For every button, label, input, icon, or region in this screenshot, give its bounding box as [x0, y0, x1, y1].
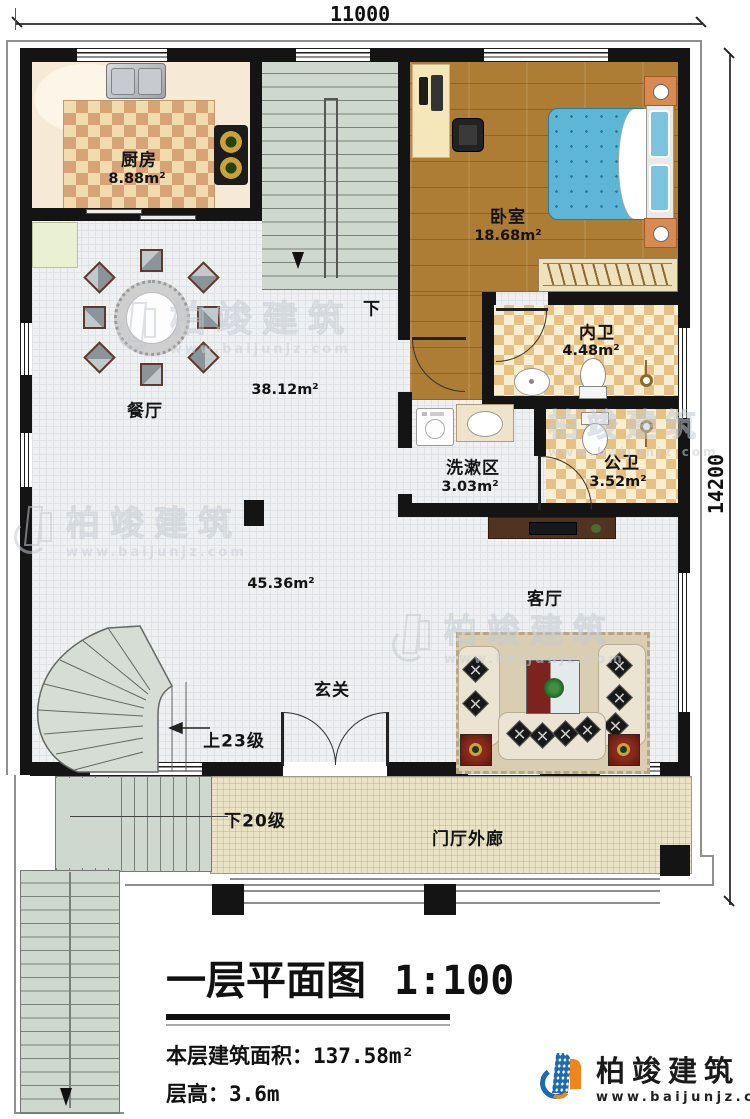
pillow: [649, 110, 670, 158]
dining-chair: [140, 249, 163, 272]
washer-knob: [422, 412, 427, 416]
room-area-public-bath: 3.52m²: [589, 474, 646, 490]
room-area-dining: 38.12m²: [251, 382, 318, 398]
room-area-kitchen: 8.88m²: [108, 171, 165, 187]
washing-machine: [416, 408, 454, 446]
dim-line-right: [729, 55, 731, 905]
dim-ext: [15, 8, 16, 30]
dim-tick: [11, 16, 22, 27]
title-underline-thin: [166, 1024, 450, 1026]
plant-pot: [469, 743, 482, 756]
window: [678, 573, 690, 712]
window: [484, 48, 608, 62]
tv: [529, 522, 577, 535]
room-label-porch: 门厅外廊: [432, 825, 504, 850]
shower-stem: [645, 360, 647, 374]
floor-area-label: 本层建筑面积：: [166, 1044, 313, 1068]
boundary: [6, 40, 8, 775]
wall-bedroom-south: [548, 292, 690, 305]
dim-right-value: 14200: [704, 454, 728, 514]
bed-quilt: [618, 109, 646, 219]
shower-head: [640, 420, 653, 433]
dining-chair: [140, 363, 163, 386]
room-area-wash: 3.03m²: [441, 479, 498, 495]
desk-chair-seat: [459, 125, 477, 145]
floor-height-value: 3.6m: [229, 1082, 280, 1106]
shower-head: [640, 374, 653, 387]
nightstand: [644, 76, 677, 106]
room-area-living: 45.36m²: [247, 576, 314, 592]
title-block: 一层平面图 1:100 本层建筑面积：137.58m² 层高：3.6m: [166, 948, 514, 1108]
floor-plan-sheet: 11000 14200: [0, 0, 750, 1119]
side-cabinet: [32, 222, 78, 268]
boundary: [6, 40, 700, 42]
burner: [220, 157, 242, 179]
washer-knob: [430, 412, 444, 416]
desk: [412, 64, 450, 158]
stair-label-down: 下: [363, 295, 381, 320]
toilet-tank: [579, 386, 607, 399]
room-area-ensuite: 4.48m²: [562, 343, 619, 359]
desk-item: [431, 75, 443, 111]
dim-tick: [695, 16, 706, 27]
coffee-table: [526, 660, 580, 714]
stair-down-arrow: [60, 1088, 72, 1106]
boundary: [712, 855, 714, 885]
room-label-living: 客厅: [527, 585, 563, 610]
porch-column: [424, 884, 456, 915]
room-label-dining: 餐厅: [127, 397, 163, 422]
sheet-title: 一层平面图: [166, 958, 366, 1004]
kitchen-sink: [106, 63, 166, 99]
wash-sink: [467, 411, 503, 437]
brand-name: 柏竣建筑: [596, 1048, 750, 1090]
porch-step: [230, 878, 660, 880]
room-label-foyer: 玄关: [314, 676, 350, 701]
washer-drum: [425, 419, 445, 439]
wall-wash-east: [534, 409, 546, 456]
room-label-public-bath: 公卫: [604, 449, 640, 474]
window: [77, 48, 167, 62]
desk-chair: [452, 118, 484, 152]
stair-rail: [324, 98, 338, 278]
window: [296, 48, 370, 62]
boundary: [14, 775, 16, 1113]
leader-line: [70, 816, 228, 817]
lamp: [653, 84, 669, 100]
drain: [529, 379, 534, 384]
lamp: [653, 226, 669, 242]
curved-stair: [30, 620, 210, 780]
plant-pot: [617, 743, 630, 756]
window: [678, 328, 690, 418]
porch-column: [660, 845, 690, 876]
column: [244, 500, 264, 526]
floor-area-value: 137.58m²: [313, 1044, 414, 1068]
wall-hall-stub: [398, 392, 412, 448]
kitchen-sliding-door: [140, 215, 196, 220]
dim-top-value: 11000: [330, 2, 390, 26]
pillow: [649, 164, 670, 212]
room-label-kitchen: 厨房: [121, 146, 157, 171]
end-table: [460, 734, 492, 766]
kitchen-sliding-door: [86, 209, 142, 214]
room-label-wash: 洗漱区: [446, 454, 500, 479]
sheet-scale: 1:100: [394, 958, 514, 1004]
room-label-bedroom: 卧室: [490, 203, 526, 228]
desk-item: [419, 77, 428, 105]
window: [20, 433, 32, 487]
wall-corridor-east: [482, 292, 494, 404]
ensuite-sink: [514, 368, 550, 396]
outdoor-stair-landing: [56, 778, 116, 868]
sink-basin: [111, 68, 135, 95]
shower-stem: [645, 433, 647, 447]
title-underline: [166, 1014, 450, 1020]
wall-stair-east: [398, 48, 410, 340]
brand-logo-icon: [540, 1051, 588, 1103]
dining-chair: [83, 306, 106, 329]
dining-table-top: [126, 292, 178, 344]
decor: [591, 524, 601, 533]
brand-website: www.baijunjz.com: [596, 1090, 750, 1105]
stair-label-up23: 上23级: [203, 727, 265, 752]
window: [20, 323, 32, 375]
wall-kitchen-east: [250, 48, 262, 221]
nightstand: [644, 218, 677, 248]
wardrobe: [538, 258, 678, 292]
burner: [220, 131, 242, 153]
stair-label-down20: 下20级: [224, 807, 286, 832]
dining-chair: [197, 306, 220, 329]
wardrobe-hangers: [543, 263, 672, 286]
sink-basin: [138, 68, 162, 95]
wash-counter: [456, 404, 514, 442]
table-plant: [544, 678, 564, 698]
boundary: [700, 40, 702, 855]
stair-down-arrow: [292, 252, 304, 269]
brand-logo: 柏竣建筑 www.baijunjz.com: [540, 1048, 750, 1105]
sideboard: [488, 517, 616, 539]
floor-height-label: 层高：: [166, 1082, 229, 1106]
stair-stringer: [69, 872, 71, 1108]
room-label-ensuite: 内卫: [579, 319, 615, 344]
porch-column: [212, 884, 244, 915]
stove: [214, 125, 248, 185]
room-area-bedroom: 18.68m²: [474, 228, 541, 244]
end-table: [608, 734, 640, 766]
